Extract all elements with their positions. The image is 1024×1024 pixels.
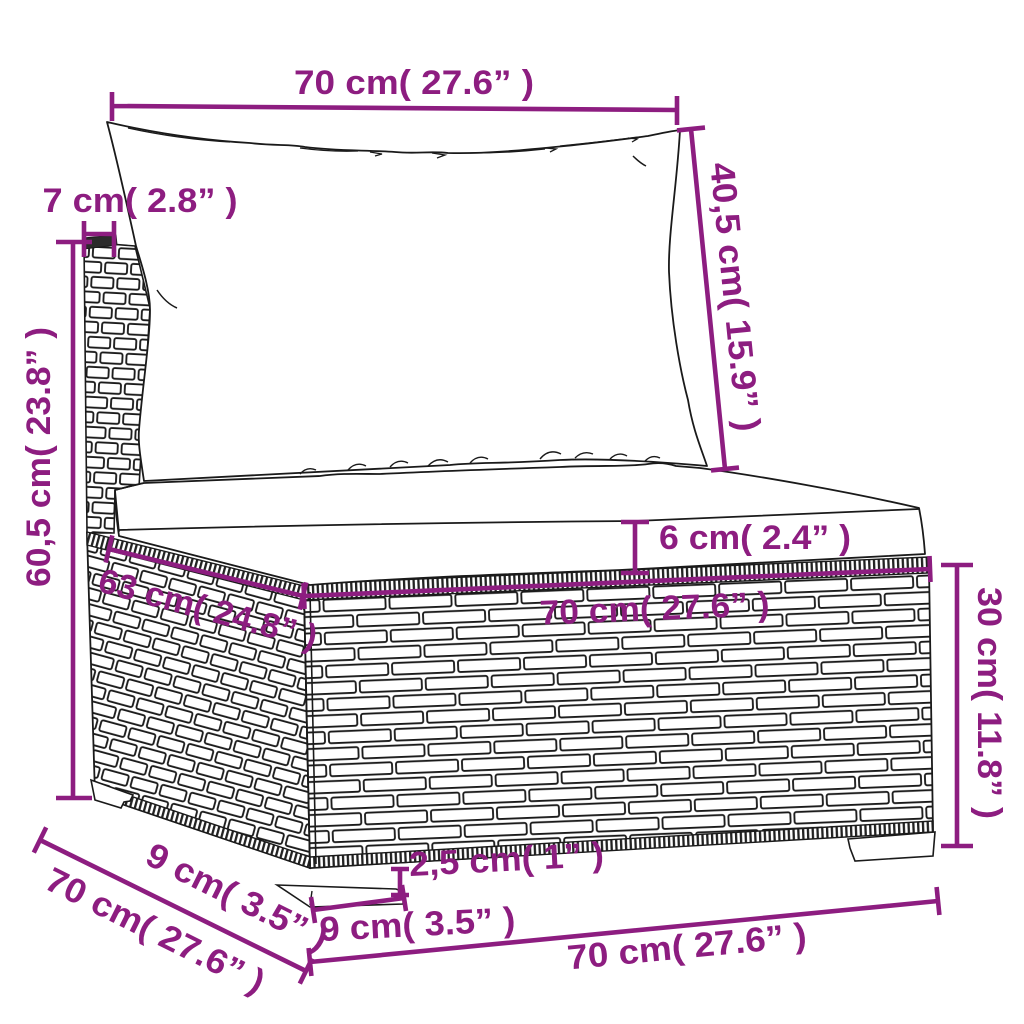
- svg-text:70 cm( 27.6” ): 70 cm( 27.6” ): [294, 64, 534, 102]
- svg-text:30 cm( 11.8” ): 30 cm( 11.8” ): [970, 587, 1008, 819]
- svg-text:7 cm( 2.8” ): 7 cm( 2.8” ): [43, 182, 238, 220]
- svg-text:60,5 cm( 23.8” ): 60,5 cm( 23.8” ): [20, 327, 58, 587]
- svg-text:6 cm( 2.4” ): 6 cm( 2.4” ): [659, 519, 851, 557]
